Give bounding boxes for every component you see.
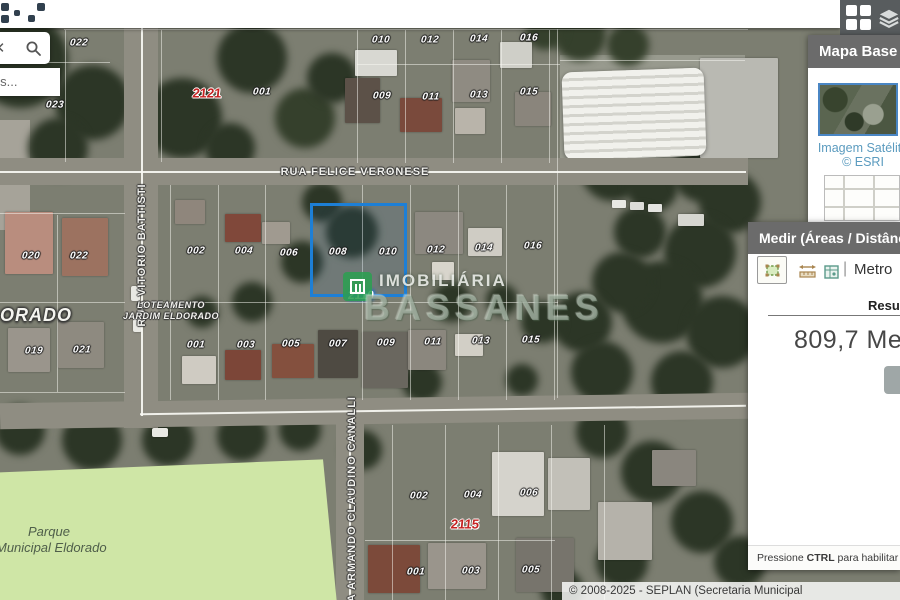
parcel-label: 023 [45,100,64,111]
building [262,222,290,244]
toolbar-separator: | [843,260,847,278]
parcel-label: 003 [461,566,480,577]
parcel-label: 002 [409,491,428,502]
parcel-label: 019 [24,346,43,357]
tree-patch [217,23,287,93]
search-suggestion-item[interactable]: uis... [0,68,60,96]
subdivision-label-line1: LOTEAMENTO [123,300,219,311]
basemap-option-satellite[interactable] [818,83,898,136]
building [225,214,261,242]
parcel-label: 001 [186,340,205,351]
basemap-option-label-line2: © ESRI [808,155,900,169]
parcel-boundary-line [218,185,219,400]
parcel-label: 021 [72,345,91,356]
measure-location-button[interactable] [816,257,846,285]
parcel-boundary-line [560,60,745,61]
parcel-label: 016 [523,241,542,252]
parcel-label: 010 [378,247,397,258]
apps-grid-icon[interactable] [846,5,871,30]
street-label-armando-canalli: RUA ARMANDO CLAUDINO CANALLI [346,396,358,600]
parcel-label: 001 [406,567,425,578]
parcel-boundary-line [0,302,125,303]
building [400,98,442,132]
basemap-option-streets[interactable] [824,175,900,221]
parcel-label: 004 [463,490,482,501]
logo-fragment [1,3,9,11]
search-widget: ✕ [0,32,50,64]
industrial-building [562,68,707,161]
street-label-felice-veronese: RUA FELICE VERONESE [281,166,430,178]
layers-icon[interactable] [878,6,900,30]
building [548,458,590,510]
parcel-boundary-line [265,185,266,400]
logo-fragment [1,15,9,23]
parcel-label: 009 [372,91,391,102]
snap-hint: Pressione CTRL para habilitar o ajuste [748,545,900,570]
parcel-label: 004 [234,246,253,257]
panel-action-button[interactable] [884,366,900,394]
block-number-label: 2115 [450,517,480,532]
parcel-boundary-line [161,30,162,162]
building [630,202,644,210]
map-application: RUA FELICE VERONESE RUA VITORIO BATTISTI… [0,0,900,600]
subdivision-label-line2: JARDIM ELDORADO [123,311,219,322]
parcel-label: 013 [471,336,490,347]
parcel-label: 012 [420,35,439,46]
parcel-label: 003 [236,340,255,351]
parcel-boundary-line [357,64,560,65]
parcel-boundary-line [0,213,125,214]
hint-key: CTRL [807,552,835,564]
car [152,428,168,437]
basemap-panel-header[interactable]: Mapa Base [808,35,900,68]
logo-fragment [28,15,35,22]
parcel-boundary-line [57,215,58,392]
parcel-boundary-line [405,30,406,163]
building [678,214,704,226]
search-clear-button[interactable]: ✕ [0,32,16,64]
measurement-result-value: 809,7 Metr [794,326,900,355]
parcel-boundary-line [64,29,748,30]
parcel-boundary-line [365,540,555,541]
subdivision-label: LOTEAMENTO JARDIM ELDORADO [123,300,219,322]
unit-dropdown[interactable]: Metro [854,261,892,278]
building [225,350,261,380]
distance-measure-icon [798,262,817,281]
parcel-label: 009 [376,338,395,349]
building [62,218,108,276]
parcel-label: 022 [69,251,88,262]
basemap-panel: Mapa Base Imagem Satélite © ESRI [808,35,900,222]
parcel-label: 014 [469,34,488,45]
park-label-line1: Parque [28,524,70,539]
parcel-boundary-line [0,392,125,393]
parcel-boundary-line [445,425,446,600]
building [612,200,626,208]
tree-patch [614,206,666,258]
measure-panel: Medir (Áreas / Distânci [748,222,900,570]
parcel-label: 014 [474,243,493,254]
building [318,330,358,378]
parcel-label: 011 [422,92,441,103]
hint-suffix: para habilitar o ajuste [835,552,900,564]
parcel-label: 015 [521,335,540,346]
search-icon [25,40,42,57]
hint-prefix: Pressione [757,552,807,564]
parcel-label: 008 [328,247,347,258]
parcel-label: 011 [424,337,443,348]
parcel-boundary-line [453,30,454,163]
basemap-option-label-line1: Imagem Satélite [808,141,900,155]
parcel-label: 001 [252,87,271,98]
widget-toolbar [840,0,900,35]
parcel-label: 016 [519,33,538,44]
measure-panel-header[interactable]: Medir (Áreas / Distânci [748,222,900,254]
neighborhood-label: DORADO [0,305,72,326]
divider [768,315,900,316]
parcel-label: 022 [69,38,88,49]
parcel-boundary-line [65,30,66,162]
parcel-boundary-line [357,30,358,163]
parcel-label: 002 [186,246,205,257]
parcel-boundary-line [551,425,552,600]
watermark-line2: BASSANES [364,287,604,329]
parcel-label: 006 [519,488,538,499]
parcel-boundary-line [498,425,499,600]
parcel-boundary-line [170,185,171,400]
parcel-label: 020 [21,251,40,262]
parcel-boundary-line [392,425,393,600]
building [5,212,53,274]
parcel-label: 005 [521,565,540,576]
area-measure-icon [763,261,782,280]
building [700,58,778,158]
parcel-label: 012 [426,245,445,256]
parcel-label: 010 [371,35,390,46]
building [455,108,485,134]
building [175,200,205,224]
result-label: Result [868,298,900,313]
search-button[interactable] [16,32,50,64]
map-attribution: © 2008-2025 - SEPLAN (Secretaria Municip… [562,582,900,600]
basemap-option-label[interactable]: Imagem Satélite © ESRI [808,141,900,169]
parcel-boundary-line [557,29,558,398]
building [182,356,216,384]
parcel-label: 015 [519,87,538,98]
park-label-line2: Municipal Eldorado [0,540,107,555]
parcel-boundary-line [604,425,605,600]
parcel-label: 006 [279,248,298,259]
building [652,450,696,486]
building [598,502,652,560]
parcel-label: 007 [328,339,347,350]
tree-patch [506,364,538,396]
building [492,452,544,516]
building [648,204,662,212]
parcel-boundary-line [501,30,502,163]
building [355,50,397,76]
block-number-label: 2121 [192,86,222,101]
logo-fragment [37,3,45,11]
parcel-label: 005 [281,339,300,350]
measure-area-button[interactable] [757,256,787,284]
parcel-label: 013 [469,90,488,101]
top-header-bar [0,0,840,28]
logo-fragment [14,10,20,16]
parcel-boundary-line [549,30,550,163]
location-measure-icon [822,262,841,281]
